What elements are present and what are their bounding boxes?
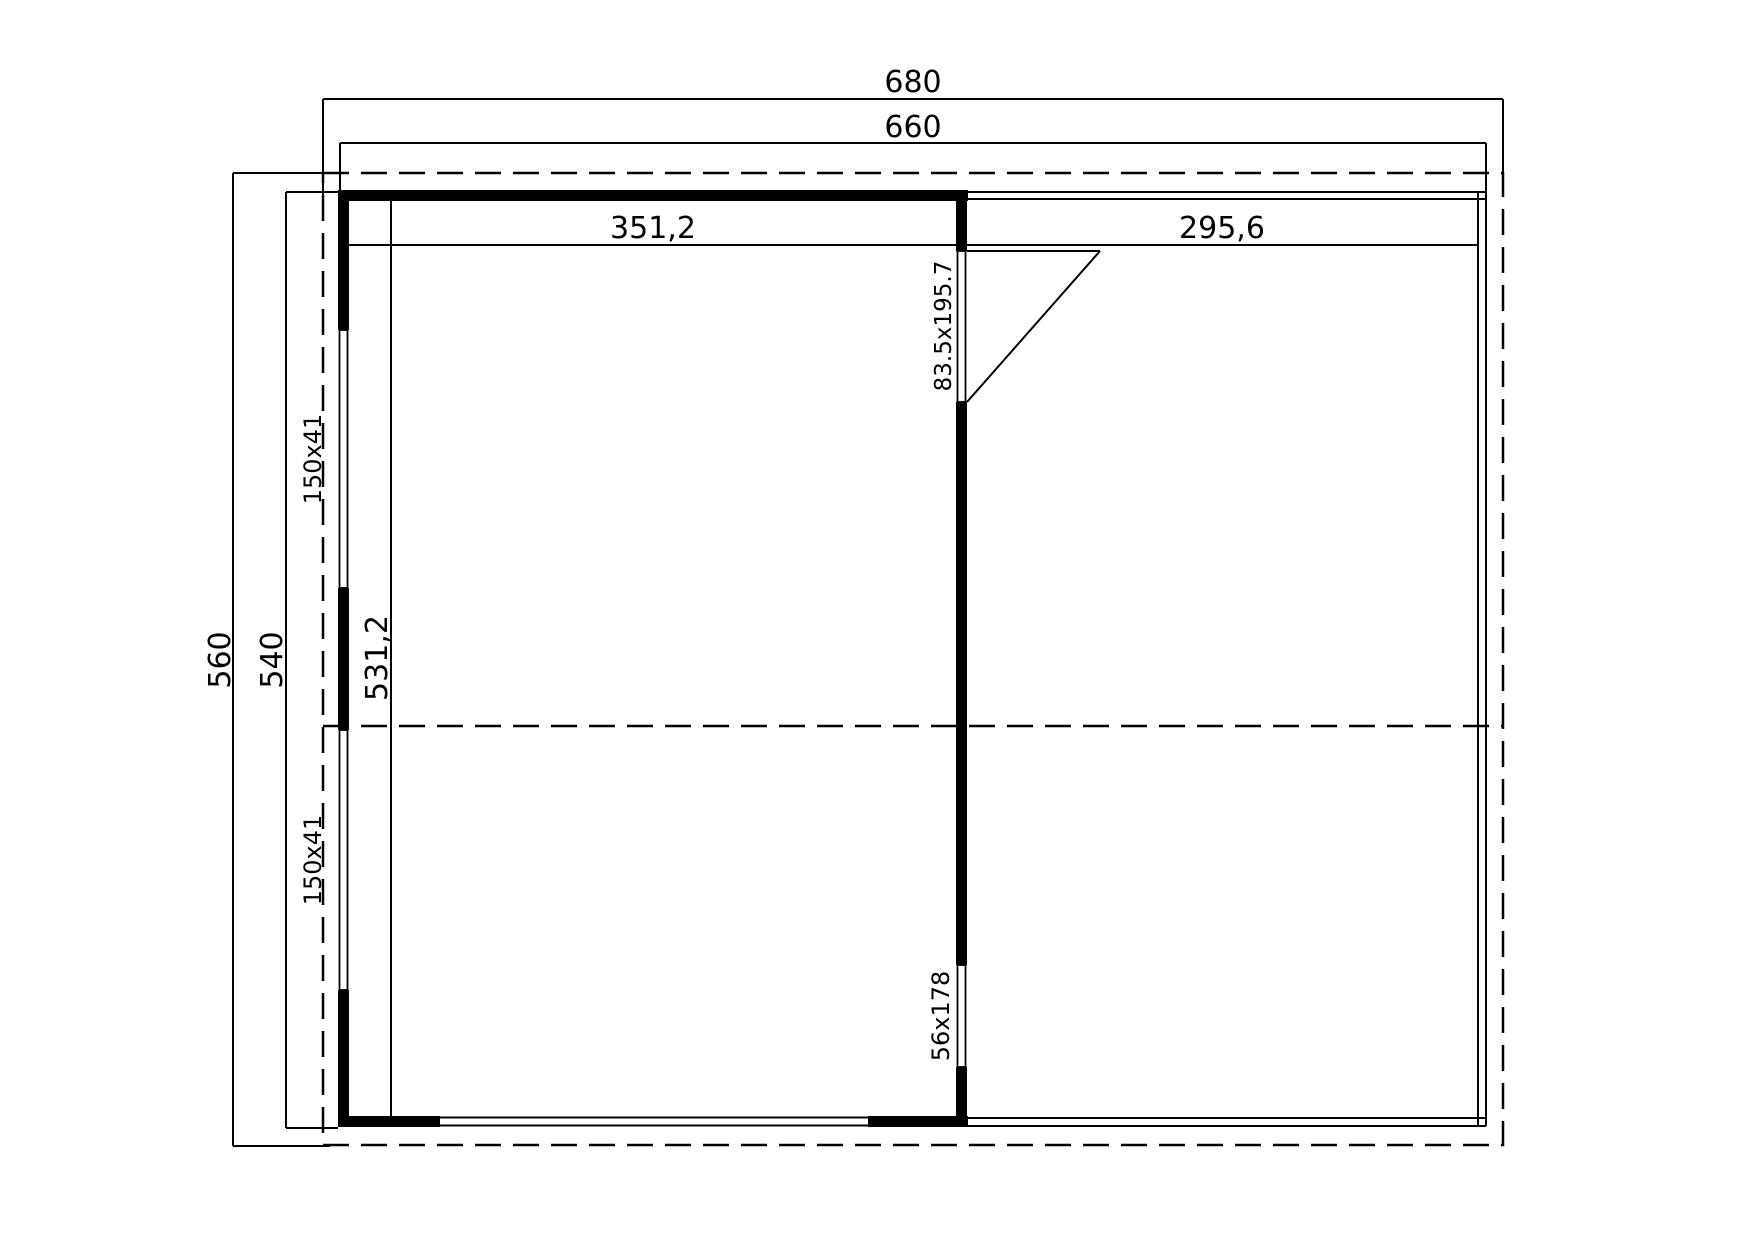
side-door-swing	[967, 251, 1100, 402]
left-wall-lower	[338, 990, 349, 1127]
interior-dimension-lines	[349, 201, 1478, 1117]
label-outer-depth: 540	[255, 631, 290, 688]
middle-wall-lower	[956, 1067, 967, 1127]
label-outer-width: 660	[884, 110, 941, 145]
left-wall-middle	[338, 588, 349, 730]
top-wall	[338, 190, 968, 201]
floor-plan-drawing: 680 660 351,2 295,6 560 540 531,2 150x41…	[0, 0, 1754, 1240]
label-window-upper: 150x41	[299, 414, 327, 505]
label-window-lower: 150x41	[299, 815, 327, 906]
solid-walls	[338, 190, 968, 1127]
thin-walls-right-bay	[967, 192, 1487, 1126]
bottom-wall-left-segment	[338, 1116, 440, 1127]
label-left-room-width: 351,2	[610, 211, 696, 246]
window-upper-symbol	[340, 330, 348, 588]
label-right-room-width: 295,6	[1179, 211, 1265, 246]
garage-door-opening	[440, 1118, 868, 1126]
label-interior-depth: 531,2	[360, 615, 395, 701]
bottom-wall-right-segment	[868, 1116, 968, 1127]
window-lower-symbol	[340, 730, 348, 990]
label-back-door: 56x178	[927, 971, 955, 1062]
label-roof-depth: 560	[203, 631, 238, 688]
middle-wall-upper	[956, 190, 967, 251]
back-door-symbol	[958, 965, 966, 1067]
label-side-door: 83.5x195.7	[931, 261, 957, 392]
middle-wall-center	[956, 402, 967, 965]
side-door-symbol	[958, 251, 966, 402]
floor-plan-page: 680 660 351,2 295,6 560 540 531,2 150x41…	[0, 0, 1754, 1240]
left-wall-upper	[338, 190, 349, 330]
door-swing-diagonal	[967, 251, 1100, 402]
wall-openings	[340, 251, 966, 1067]
dim-outer-depth	[286, 192, 338, 1128]
roof-outline	[323, 173, 1503, 1145]
dim-outer-width	[340, 143, 1486, 192]
label-roof-width: 680	[884, 65, 941, 100]
dimension-labels: 680 660 351,2 295,6 560 540 531,2 150x41…	[203, 65, 1265, 1061]
